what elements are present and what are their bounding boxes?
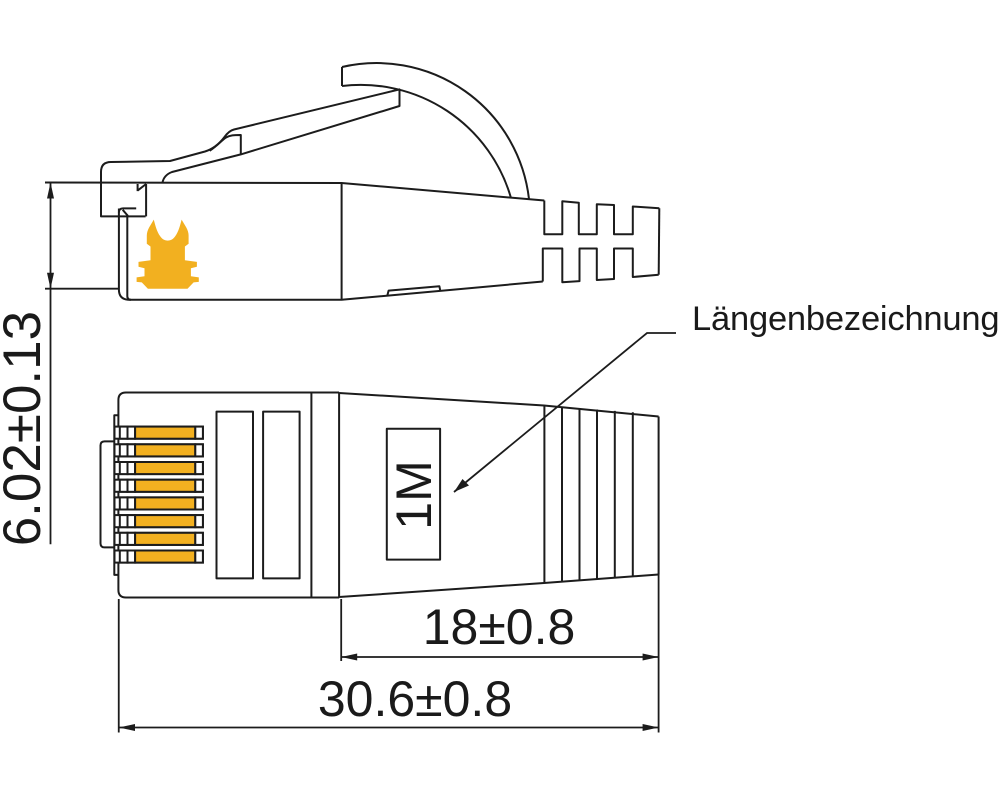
- svg-text:1M: 1M: [386, 460, 442, 529]
- svg-text:Längenbezeichnung: Längenbezeichnung: [692, 300, 999, 338]
- svg-text:30.6±0.8: 30.6±0.8: [318, 671, 512, 727]
- svg-text:6.02±0.13: 6.02±0.13: [0, 311, 52, 546]
- svg-text:18±0.8: 18±0.8: [423, 599, 576, 655]
